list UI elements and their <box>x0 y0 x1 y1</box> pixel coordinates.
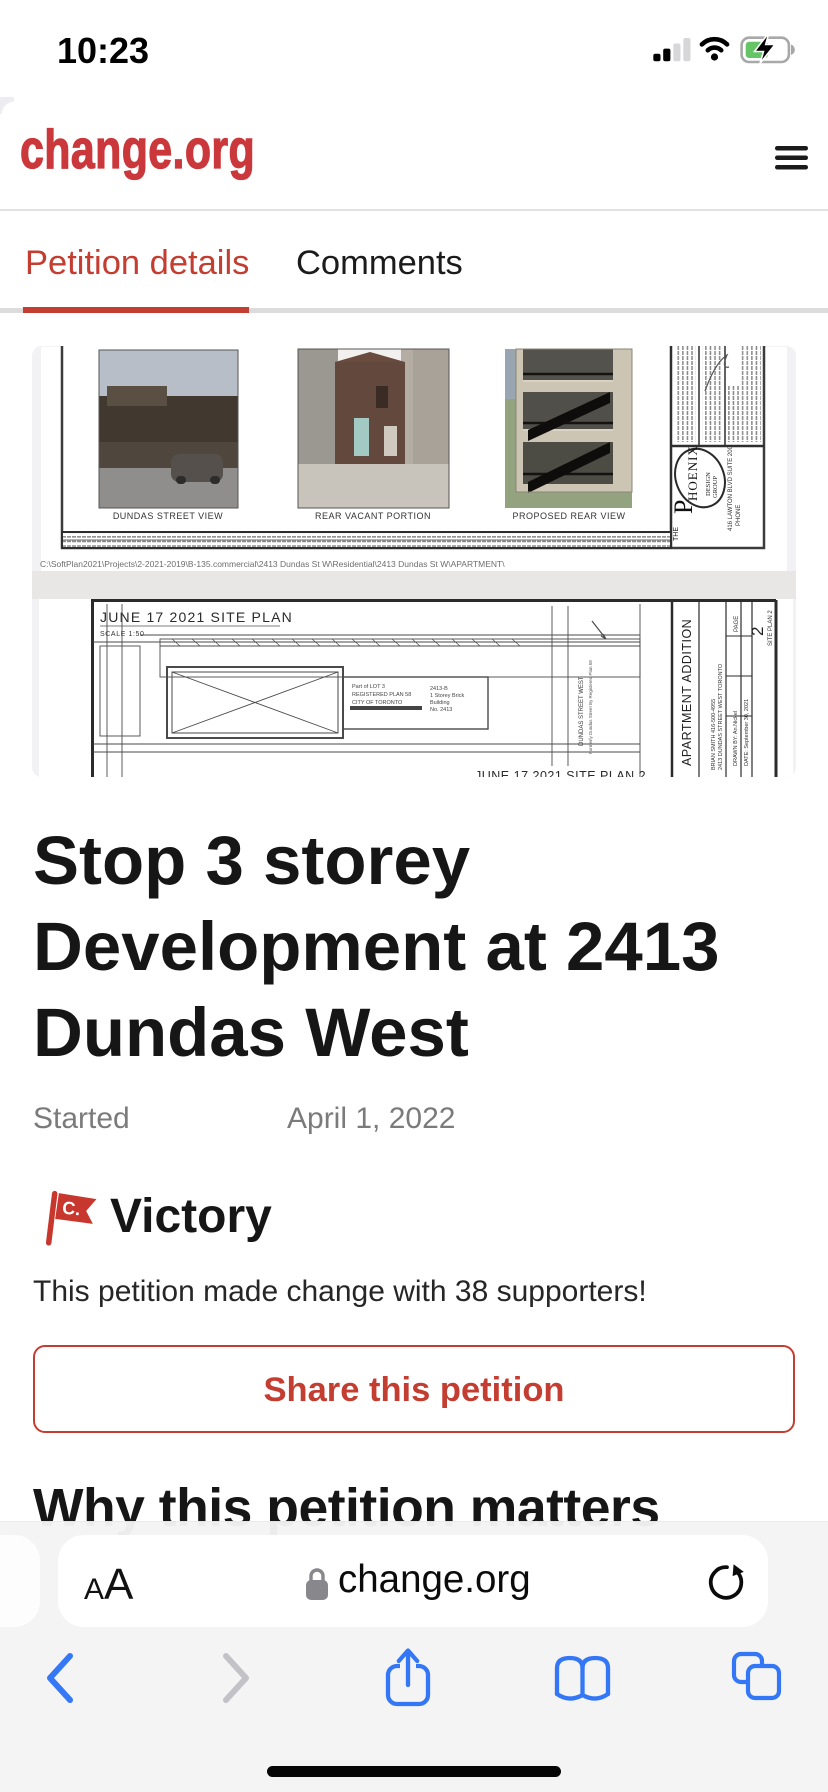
svg-text:JUNE 17 2021 SITE PLAN 2: JUNE 17 2021 SITE PLAN 2 <box>475 769 646 777</box>
svg-text:THE: THE <box>673 527 680 541</box>
svg-text:BRIAN SMITH 416-500-4955: BRIAN SMITH 416-500-4955 <box>711 699 717 770</box>
svg-text:DUNDAS STREET WEST: DUNDAS STREET WEST <box>579 676 585 746</box>
svg-text:REGISTERED PLAN 58: REGISTERED PLAN 58 <box>352 692 411 698</box>
svg-text:REAR VACANT PORTION: REAR VACANT PORTION <box>315 511 431 521</box>
svg-text:PROPOSED REAR VIEW: PROPOSED REAR VIEW <box>512 511 625 521</box>
svg-text:Part of LOT 3: Part of LOT 3 <box>352 684 385 690</box>
svg-text:HOENIX: HOENIX <box>685 445 700 501</box>
svg-text:2413 DUNDAS STREET WEST TORO: 2413 DUNDAS STREET WEST TORONTO <box>718 663 724 770</box>
svg-text:DESIGN: DESIGN <box>705 472 712 496</box>
svg-text:1 Storey Brick: 1 Storey Brick <box>430 693 464 699</box>
svg-text:PHONE: PHONE <box>736 505 742 526</box>
svg-text:DRAWN BY: An.Nickel: DRAWN BY: An.Nickel <box>733 711 739 766</box>
svg-text:SITE PLAN 2: SITE PLAN 2 <box>768 610 774 646</box>
svg-text:No. 2413: No. 2413 <box>430 707 452 713</box>
svg-text:CITY OF TORONTO: CITY OF TORONTO <box>352 700 403 706</box>
svg-text:PAGE: PAGE <box>734 616 740 632</box>
svg-text:C:\SoftPlan2021\Projects\2-202: C:\SoftPlan2021\Projects\2-2021-2019\B-1… <box>40 559 505 569</box>
svg-text:JUNE 17 2021 SITE PLAN: JUNE 17 2021 SITE PLAN <box>100 609 293 625</box>
svg-text:DATE: September 30, 2021: DATE: September 30, 2021 <box>744 699 750 766</box>
svg-text:2: 2 <box>748 627 767 636</box>
svg-text:APARTMENT ADDITION: APARTMENT ADDITION <box>680 619 694 766</box>
svg-text:DUNDAS STREET VIEW: DUNDAS STREET VIEW <box>113 511 223 521</box>
svg-text:416 LAWTON BLVD SUITE 200: 416 LAWTON BLVD SUITE 200 <box>728 445 734 531</box>
svg-text:GROUP: GROUP <box>712 476 719 498</box>
svg-text:C.: C. <box>61 1198 81 1220</box>
svg-text:Formerly Dundas Street By Regi: Formerly Dundas Street By Registered Pla… <box>588 660 593 754</box>
svg-text:2413-B: 2413-B <box>430 686 448 692</box>
svg-text:Building: Building <box>430 700 450 706</box>
